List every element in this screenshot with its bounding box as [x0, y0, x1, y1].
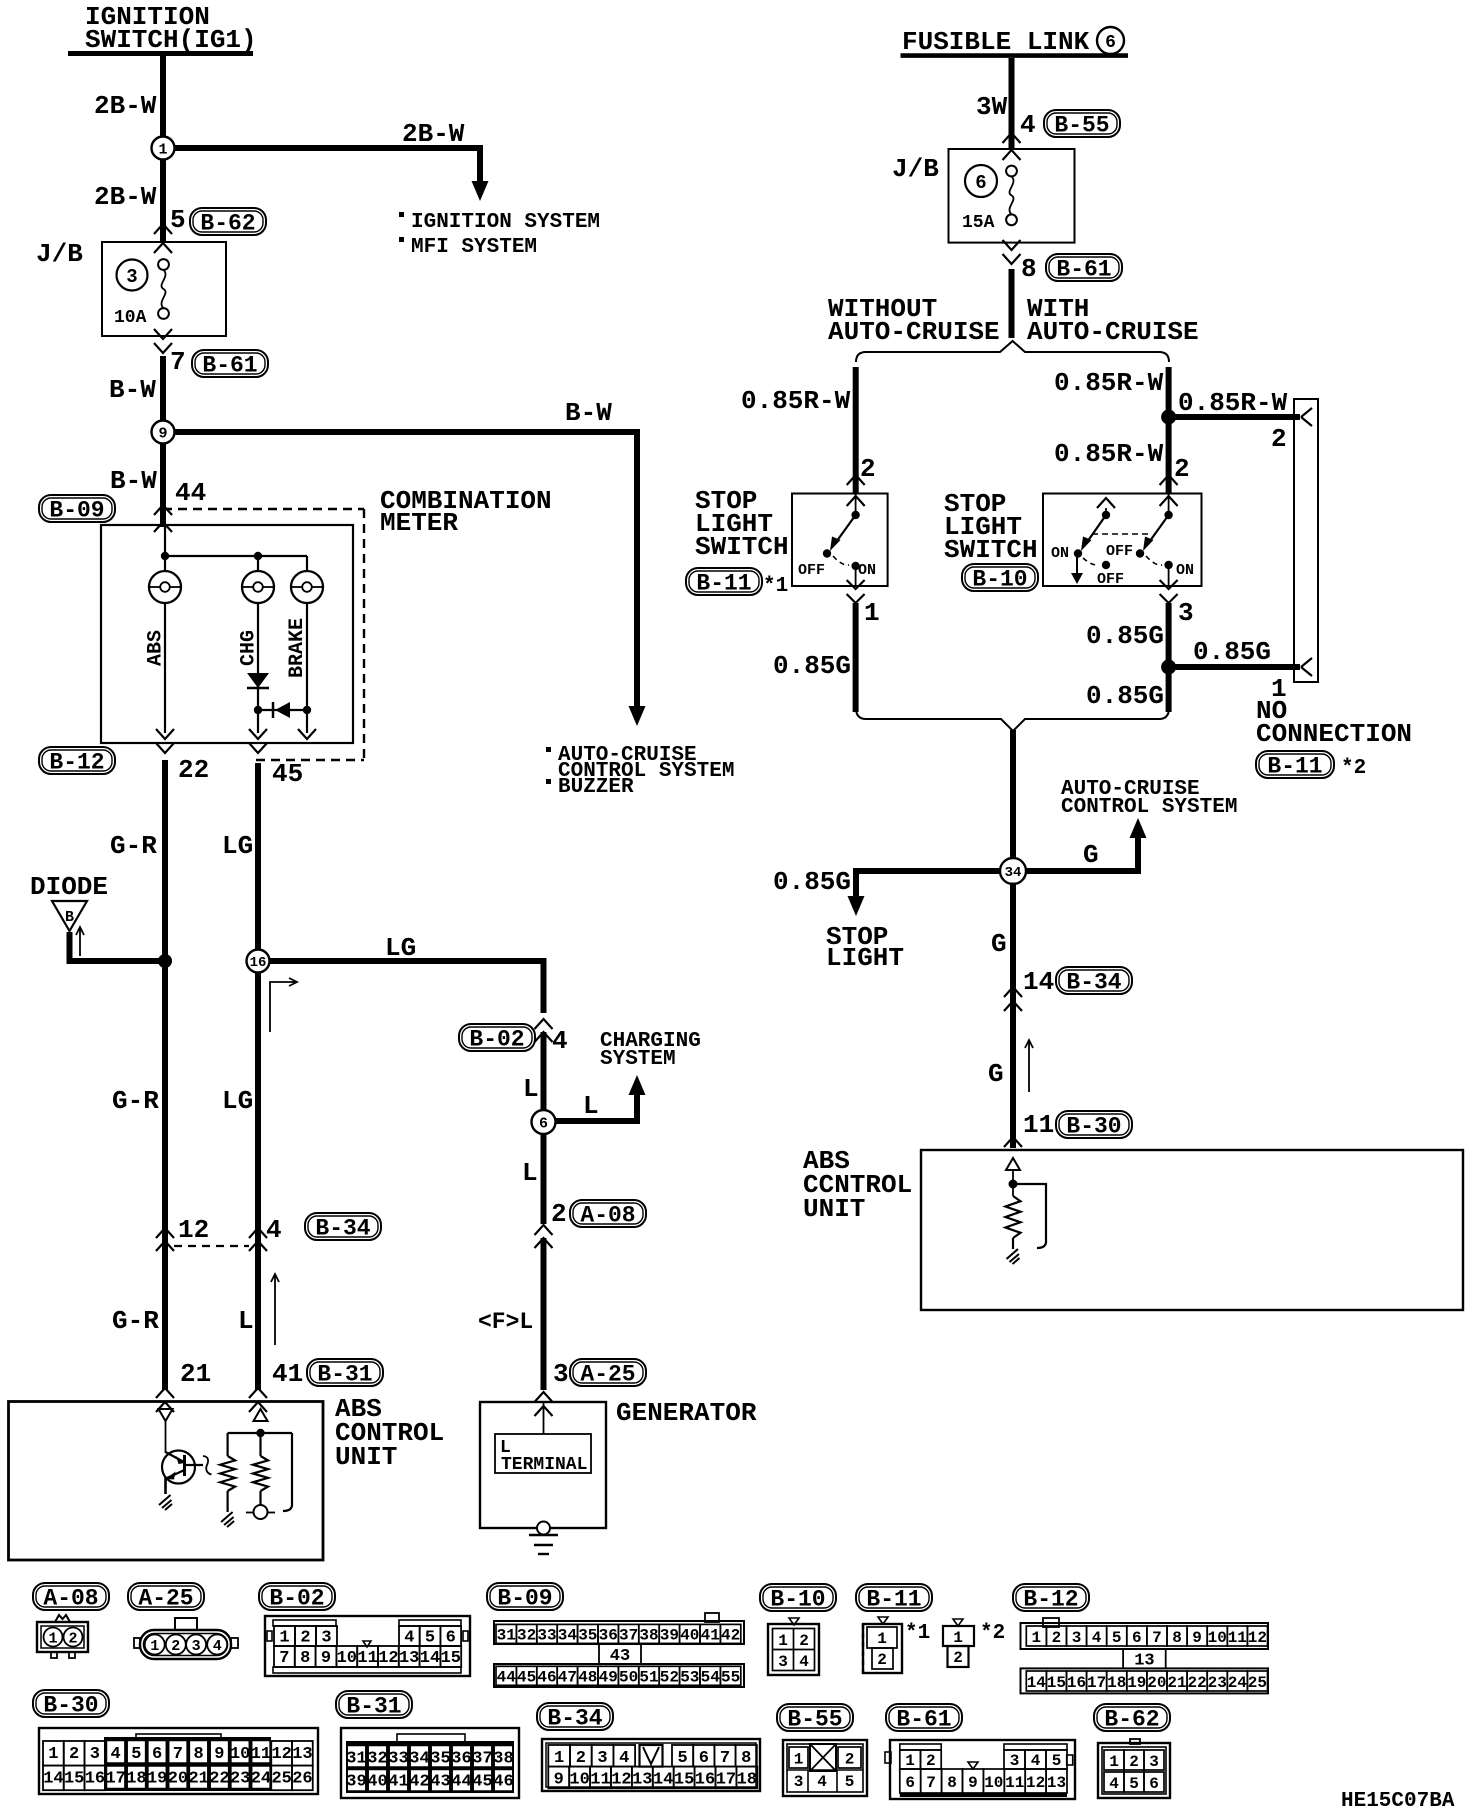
svg-text:6: 6 [1105, 33, 1116, 53]
svg-text:2: 2 [1271, 424, 1287, 454]
svg-text:MFI SYSTEM: MFI SYSTEM [411, 236, 537, 259]
svg-text:B-61: B-61 [1056, 257, 1111, 283]
svg-text:1: 1 [794, 1751, 804, 1769]
svg-text:12: 12 [1026, 1774, 1045, 1792]
svg-text:39: 39 [660, 1627, 679, 1645]
svg-text:B-34: B-34 [315, 1216, 370, 1242]
svg-text:LG: LG [385, 933, 416, 963]
svg-text:16: 16 [695, 1771, 715, 1790]
svg-text:METER: METER [380, 508, 458, 538]
svg-text:17: 17 [105, 1770, 125, 1789]
svg-text:10: 10 [1208, 1629, 1227, 1647]
svg-text:AUTO-CRUISE: AUTO-CRUISE [1027, 317, 1199, 347]
svg-text:10: 10 [569, 1771, 589, 1790]
svg-text:15: 15 [1047, 1674, 1066, 1692]
svg-text:34: 34 [1005, 865, 1022, 881]
svg-text:20: 20 [168, 1770, 188, 1789]
svg-text:6: 6 [905, 1774, 915, 1792]
svg-text:B-62: B-62 [200, 211, 255, 237]
svg-text:15: 15 [441, 1649, 461, 1668]
svg-text:18: 18 [1107, 1674, 1126, 1692]
svg-text:16: 16 [85, 1770, 105, 1789]
svg-text:18: 18 [126, 1770, 146, 1789]
svg-text:31: 31 [497, 1627, 516, 1645]
svg-text:1: 1 [953, 1629, 963, 1647]
svg-text:13: 13 [292, 1745, 312, 1764]
svg-text:3: 3 [1178, 598, 1194, 628]
svg-text:5: 5 [1129, 1775, 1139, 1793]
svg-text:2B-W: 2B-W [402, 119, 465, 149]
svg-text:5: 5 [131, 1745, 141, 1764]
svg-text:<F>L: <F>L [478, 1309, 533, 1335]
svg-text:48: 48 [578, 1669, 597, 1687]
svg-text:0.85G: 0.85G [1086, 681, 1164, 711]
svg-text:25: 25 [1248, 1674, 1267, 1692]
svg-text:B-02: B-02 [469, 1027, 524, 1053]
svg-text:32: 32 [367, 1750, 387, 1769]
svg-text:0.85R-W: 0.85R-W [1178, 388, 1288, 418]
svg-text:2: 2 [799, 1632, 809, 1650]
svg-text:12: 12 [271, 1745, 291, 1764]
svg-text:14: 14 [1023, 967, 1054, 997]
svg-text:36: 36 [599, 1627, 618, 1645]
svg-text:2: 2 [877, 1651, 887, 1669]
svg-text:14: 14 [653, 1771, 673, 1790]
svg-text:11: 11 [357, 1649, 377, 1668]
svg-text:34: 34 [409, 1750, 429, 1769]
svg-text:4: 4 [1109, 1775, 1119, 1793]
svg-text:31: 31 [346, 1750, 366, 1769]
svg-text:2: 2 [926, 1752, 936, 1770]
svg-text:B-34: B-34 [1066, 970, 1121, 996]
svg-text:*2: *2 [980, 1622, 1005, 1645]
svg-text:14: 14 [43, 1770, 63, 1789]
svg-text:1: 1 [554, 1749, 564, 1768]
svg-text:0.85R-W: 0.85R-W [1054, 439, 1164, 469]
svg-text:2: 2 [860, 454, 876, 484]
svg-text:39: 39 [346, 1773, 366, 1792]
svg-text:*1: *1 [763, 575, 788, 598]
svg-text:OFF: OFF [1106, 543, 1133, 560]
svg-text:J/B: J/B [892, 154, 939, 184]
svg-text:10A: 10A [114, 308, 147, 328]
svg-text:B-W: B-W [110, 466, 157, 496]
svg-text:3W: 3W [976, 92, 1008, 122]
svg-text:34: 34 [558, 1627, 578, 1645]
svg-text:4: 4 [619, 1749, 629, 1768]
svg-text:2: 2 [576, 1749, 586, 1768]
svg-text:12: 12 [178, 1215, 209, 1245]
svg-text:J/B: J/B [36, 239, 83, 269]
svg-text:BUZZER: BUZZER [558, 776, 634, 799]
svg-text:0.85R-W: 0.85R-W [741, 386, 851, 416]
svg-text:33: 33 [537, 1627, 556, 1645]
svg-text:5: 5 [845, 1773, 855, 1791]
svg-text:10: 10 [337, 1649, 357, 1668]
svg-text:35: 35 [430, 1750, 450, 1769]
svg-text:37: 37 [619, 1627, 638, 1645]
svg-text:LG: LG [222, 1086, 253, 1116]
svg-text:3: 3 [778, 1653, 788, 1671]
svg-text:9: 9 [158, 425, 167, 442]
svg-text:1: 1 [1031, 1629, 1041, 1647]
svg-text:SWITCH(IG1): SWITCH(IG1) [85, 25, 257, 55]
svg-text:14: 14 [1027, 1674, 1047, 1692]
svg-text:8: 8 [194, 1745, 204, 1764]
svg-text:6: 6 [446, 1629, 456, 1648]
svg-text:6: 6 [1149, 1775, 1159, 1793]
svg-text:AUTO-CRUISE: AUTO-CRUISE [828, 317, 1000, 347]
svg-text:CONNECTION: CONNECTION [1256, 719, 1412, 749]
svg-text:2B-W: 2B-W [94, 91, 157, 121]
svg-text:36: 36 [451, 1750, 471, 1769]
svg-text:LIGHT: LIGHT [826, 943, 904, 973]
svg-text:16: 16 [1067, 1674, 1086, 1692]
svg-text:7: 7 [1152, 1629, 1162, 1647]
svg-text:35: 35 [578, 1627, 597, 1645]
svg-text:37: 37 [472, 1750, 492, 1769]
svg-text:B-34: B-34 [547, 1706, 602, 1732]
svg-text:B-11: B-11 [1267, 754, 1322, 780]
svg-text:5: 5 [1112, 1629, 1122, 1647]
svg-text:LG: LG [222, 831, 253, 861]
svg-text:3: 3 [192, 1638, 201, 1655]
svg-text:G: G [988, 1059, 1004, 1089]
svg-text:ON: ON [858, 562, 876, 579]
svg-text:1: 1 [778, 1632, 788, 1650]
svg-text:25: 25 [271, 1770, 291, 1789]
svg-text:12: 12 [378, 1649, 398, 1668]
svg-text:22: 22 [209, 1770, 229, 1789]
svg-text:10: 10 [230, 1745, 250, 1764]
svg-text:54: 54 [701, 1669, 721, 1687]
svg-text:9: 9 [1192, 1629, 1202, 1647]
svg-text:2: 2 [171, 1638, 180, 1655]
svg-text:2: 2 [953, 1649, 963, 1667]
svg-text:L: L [522, 1158, 538, 1188]
svg-text:43: 43 [430, 1773, 450, 1792]
svg-text:32: 32 [517, 1627, 536, 1645]
svg-text:45: 45 [472, 1773, 492, 1792]
svg-text:G-R: G-R [112, 1306, 159, 1336]
svg-text:38: 38 [639, 1627, 658, 1645]
svg-text:11: 11 [251, 1745, 271, 1764]
svg-text:14: 14 [420, 1649, 440, 1668]
svg-text:42: 42 [721, 1627, 740, 1645]
svg-text:4: 4 [1092, 1629, 1102, 1647]
svg-text:7: 7 [279, 1649, 289, 1668]
svg-text:ON: ON [1051, 545, 1069, 562]
svg-text:40: 40 [680, 1627, 699, 1645]
svg-text:15: 15 [64, 1770, 84, 1789]
svg-text:1: 1 [1109, 1753, 1119, 1771]
svg-text:SWITCH: SWITCH [695, 532, 789, 562]
svg-text:2B-W: 2B-W [94, 182, 157, 212]
svg-text:26: 26 [292, 1770, 312, 1789]
svg-text:2: 2 [1174, 454, 1190, 484]
svg-text:5: 5 [425, 1629, 435, 1648]
svg-text:9: 9 [214, 1745, 224, 1764]
svg-text:*2: *2 [1341, 757, 1366, 780]
svg-text:DIODE: DIODE [30, 872, 108, 902]
svg-text:7: 7 [926, 1774, 936, 1792]
svg-text:15A: 15A [962, 213, 995, 233]
svg-text:9: 9 [554, 1771, 564, 1790]
svg-text:B-31: B-31 [346, 1694, 401, 1720]
svg-text:3: 3 [794, 1773, 804, 1791]
svg-text:8: 8 [947, 1774, 957, 1792]
svg-text:1: 1 [158, 141, 167, 158]
svg-text:B-30: B-30 [1066, 1114, 1121, 1140]
svg-text:55: 55 [721, 1669, 740, 1687]
svg-text:44: 44 [497, 1669, 517, 1687]
svg-text:B-12: B-12 [49, 750, 104, 776]
svg-text:42: 42 [409, 1773, 429, 1792]
svg-text:2: 2 [551, 1199, 567, 1229]
svg-text:3: 3 [321, 1629, 331, 1648]
svg-text:BRAKE: BRAKE [286, 618, 309, 678]
svg-text:B-55: B-55 [1054, 113, 1109, 139]
svg-text:23: 23 [230, 1770, 250, 1789]
svg-text:OFF: OFF [1097, 571, 1124, 588]
svg-text:6: 6 [152, 1745, 162, 1764]
svg-text:B-55: B-55 [787, 1707, 842, 1733]
svg-text:B-10: B-10 [770, 1587, 825, 1613]
svg-text:52: 52 [660, 1669, 679, 1687]
svg-text:46: 46 [537, 1669, 556, 1687]
svg-text:1: 1 [864, 598, 880, 628]
svg-text:2: 2 [1129, 1753, 1139, 1771]
svg-text:3: 3 [553, 1359, 569, 1389]
svg-text:ON: ON [1176, 562, 1194, 579]
svg-text:0.85G: 0.85G [773, 867, 851, 897]
svg-text:3: 3 [90, 1745, 100, 1764]
svg-text:UNIT: UNIT [335, 1442, 397, 1472]
svg-text:22: 22 [178, 755, 209, 785]
svg-text:12: 12 [1248, 1629, 1267, 1647]
svg-text:B-W: B-W [565, 398, 612, 428]
svg-text:B-W: B-W [109, 375, 156, 405]
svg-text:A-25: A-25 [580, 1362, 635, 1388]
svg-text:5: 5 [677, 1749, 687, 1768]
svg-text:3: 3 [1072, 1629, 1082, 1647]
svg-text:2: 2 [845, 1751, 855, 1769]
svg-text:G-R: G-R [112, 1086, 159, 1116]
svg-text:B: B [65, 909, 74, 926]
svg-text:24: 24 [251, 1770, 271, 1789]
svg-text:B-09: B-09 [49, 498, 104, 524]
svg-text:L: L [238, 1306, 254, 1336]
svg-text:15: 15 [674, 1771, 694, 1790]
svg-text:B-62: B-62 [1104, 1707, 1159, 1733]
svg-text:45: 45 [272, 759, 303, 789]
svg-text:B-61: B-61 [896, 1707, 951, 1733]
svg-text:13: 13 [399, 1649, 419, 1668]
svg-text:24: 24 [1228, 1674, 1248, 1692]
svg-text:4: 4 [552, 1026, 568, 1056]
svg-text:3: 3 [1149, 1753, 1159, 1771]
svg-text:53: 53 [680, 1669, 699, 1687]
svg-text:3: 3 [597, 1749, 607, 1768]
svg-text:SYSTEM: SYSTEM [600, 1048, 676, 1071]
svg-text:B-30: B-30 [43, 1693, 98, 1719]
svg-text:21: 21 [1167, 1674, 1186, 1692]
svg-text:UNIT: UNIT [803, 1194, 865, 1224]
svg-text:B-11: B-11 [696, 571, 751, 597]
svg-text:B-12: B-12 [1023, 1587, 1078, 1613]
svg-text:17: 17 [716, 1771, 736, 1790]
svg-text:47: 47 [558, 1669, 577, 1687]
svg-text:4: 4 [1031, 1752, 1041, 1770]
svg-text:*1: *1 [905, 1622, 930, 1645]
svg-text:GENERATOR: GENERATOR [616, 1398, 757, 1428]
svg-text:1: 1 [48, 1745, 58, 1764]
svg-text:13: 13 [1047, 1774, 1066, 1792]
svg-text:38: 38 [493, 1750, 513, 1769]
svg-text:4: 4 [817, 1773, 827, 1791]
svg-text:G: G [1083, 840, 1099, 870]
svg-text:1: 1 [877, 1630, 887, 1648]
svg-text:IGNITION SYSTEM: IGNITION SYSTEM [411, 211, 600, 234]
svg-text:1: 1 [279, 1629, 289, 1648]
svg-text:6: 6 [975, 172, 986, 194]
svg-text:B-09: B-09 [497, 1586, 552, 1612]
svg-text:4: 4 [111, 1745, 121, 1764]
svg-text:41: 41 [701, 1627, 720, 1645]
svg-text:1: 1 [905, 1752, 915, 1770]
svg-text:13: 13 [632, 1771, 652, 1790]
svg-text:21: 21 [180, 1359, 211, 1389]
svg-text:4: 4 [266, 1215, 282, 1245]
svg-text:B-11: B-11 [866, 1587, 921, 1613]
svg-text:21: 21 [188, 1770, 208, 1789]
svg-text:18: 18 [737, 1771, 757, 1790]
svg-text:B-10: B-10 [972, 567, 1027, 593]
svg-text:9: 9 [321, 1649, 331, 1668]
svg-text:1: 1 [48, 1631, 57, 1648]
svg-text:L: L [523, 1074, 539, 1104]
svg-text:46: 46 [493, 1773, 513, 1792]
svg-text:8: 8 [300, 1649, 310, 1668]
svg-text:44: 44 [175, 478, 206, 508]
svg-text:7: 7 [170, 347, 186, 377]
svg-text:L: L [583, 1091, 599, 1121]
svg-text:10: 10 [984, 1774, 1003, 1792]
svg-text:7: 7 [173, 1745, 183, 1764]
svg-text:TERMINAL: TERMINAL [501, 1455, 587, 1475]
svg-text:CONTROL SYSTEM: CONTROL SYSTEM [1061, 796, 1237, 819]
svg-text:OFF: OFF [798, 562, 825, 579]
svg-text:6: 6 [699, 1749, 709, 1768]
svg-text:23: 23 [1208, 1674, 1227, 1692]
svg-text:11: 11 [1228, 1629, 1247, 1647]
svg-text:8: 8 [1021, 254, 1037, 284]
svg-text:5: 5 [170, 205, 186, 235]
svg-text:19: 19 [147, 1770, 167, 1789]
svg-text:0.85G: 0.85G [1086, 621, 1164, 651]
svg-text:8: 8 [1172, 1629, 1182, 1647]
svg-text:1: 1 [150, 1638, 159, 1655]
svg-text:45: 45 [517, 1669, 536, 1687]
svg-text:11: 11 [1023, 1110, 1054, 1140]
svg-text:19: 19 [1127, 1674, 1146, 1692]
svg-text:51: 51 [639, 1669, 658, 1687]
svg-text:6: 6 [539, 1115, 548, 1132]
svg-text:SWITCH: SWITCH [944, 535, 1038, 565]
svg-text:7: 7 [720, 1749, 730, 1768]
svg-text:3: 3 [1010, 1752, 1020, 1770]
svg-text:50: 50 [619, 1669, 638, 1687]
svg-text:12: 12 [611, 1771, 631, 1790]
svg-text:33: 33 [388, 1750, 408, 1769]
svg-text:40: 40 [367, 1773, 387, 1792]
svg-text:49: 49 [599, 1669, 618, 1687]
svg-text:22: 22 [1187, 1674, 1206, 1692]
svg-text:2: 2 [300, 1629, 310, 1648]
svg-text:5: 5 [1052, 1752, 1062, 1770]
svg-text:11: 11 [590, 1771, 610, 1790]
svg-text:A-25: A-25 [138, 1586, 193, 1612]
svg-text:FUSIBLE LINK: FUSIBLE LINK [902, 27, 1090, 57]
svg-text:B-02: B-02 [269, 1586, 324, 1612]
svg-text:20: 20 [1147, 1674, 1166, 1692]
svg-text:3: 3 [126, 266, 137, 288]
svg-text:0.85G: 0.85G [1193, 637, 1271, 667]
svg-text:41: 41 [272, 1359, 303, 1389]
svg-text:B-61: B-61 [202, 353, 257, 379]
svg-text:16: 16 [250, 955, 267, 971]
svg-text:2: 2 [69, 1745, 79, 1764]
svg-text:41: 41 [388, 1773, 408, 1792]
svg-text:9: 9 [968, 1774, 978, 1792]
svg-text:A-08: A-08 [43, 1586, 98, 1612]
svg-text:4: 4 [404, 1629, 414, 1648]
svg-text:4: 4 [799, 1653, 809, 1671]
svg-text:B-31: B-31 [317, 1362, 372, 1388]
svg-text:6: 6 [1132, 1629, 1142, 1647]
svg-text:2: 2 [68, 1631, 77, 1648]
svg-text:17: 17 [1087, 1674, 1106, 1692]
svg-text:11: 11 [1005, 1774, 1024, 1792]
svg-text:G-R: G-R [110, 831, 157, 861]
svg-text:0.85G: 0.85G [773, 651, 851, 681]
svg-text:0.85R-W: 0.85R-W [1054, 368, 1164, 398]
svg-text:4: 4 [213, 1638, 222, 1655]
svg-text:2: 2 [1052, 1629, 1062, 1647]
svg-text:A-08: A-08 [580, 1203, 635, 1229]
svg-text:HE15C07BA: HE15C07BA [1341, 1790, 1455, 1810]
svg-text:44: 44 [451, 1773, 471, 1792]
svg-text:4: 4 [1020, 110, 1036, 140]
svg-text:G: G [991, 929, 1007, 959]
svg-text:8: 8 [741, 1749, 751, 1768]
